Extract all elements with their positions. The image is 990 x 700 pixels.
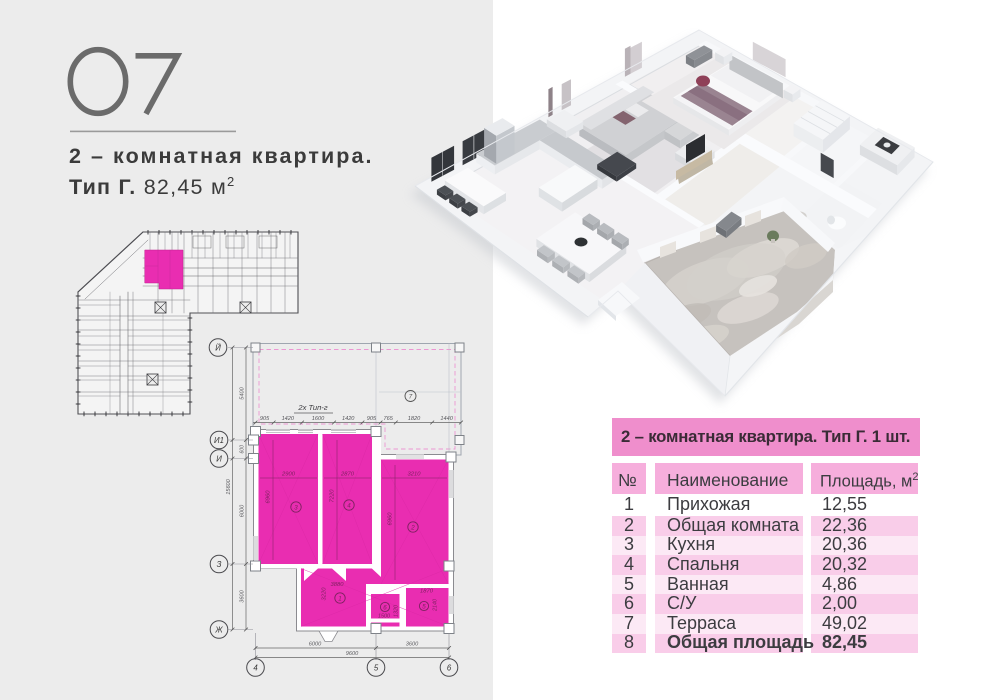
svg-text:3880: 3880 (331, 582, 345, 588)
svg-text:2870: 2870 (340, 472, 355, 478)
svg-text:1: 1 (338, 595, 341, 602)
svg-text:600: 600 (240, 445, 246, 454)
svg-text:5400: 5400 (240, 386, 246, 399)
svg-text:1420: 1420 (282, 416, 295, 422)
svg-text:6000: 6000 (309, 642, 322, 648)
svg-text:5: 5 (374, 663, 379, 672)
svg-text:2x Тип-г: 2x Тип-г (297, 403, 327, 412)
svg-text:9600: 9600 (346, 651, 359, 657)
svg-text:3: 3 (294, 504, 298, 511)
svg-text:1820: 1820 (408, 416, 421, 422)
svg-text:Й: Й (215, 343, 221, 352)
svg-text:1440: 1440 (440, 416, 453, 422)
svg-text:2140: 2140 (433, 599, 439, 612)
svg-text:905: 905 (367, 416, 377, 422)
svg-text:1870: 1870 (420, 589, 434, 595)
svg-text:1600: 1600 (312, 416, 325, 422)
svg-text:6960: 6960 (388, 512, 394, 526)
svg-text:1500: 1500 (378, 614, 390, 620)
svg-text:15600: 15600 (226, 478, 232, 494)
svg-text:3600: 3600 (406, 642, 419, 648)
svg-text:3220: 3220 (322, 587, 328, 601)
svg-text:905: 905 (260, 416, 270, 422)
svg-text:6960: 6960 (266, 490, 272, 504)
svg-text:4: 4 (347, 502, 351, 509)
svg-text:2: 2 (410, 524, 415, 531)
svg-text:5: 5 (422, 603, 426, 610)
svg-text:3600: 3600 (240, 589, 246, 602)
svg-text:3210: 3210 (408, 472, 422, 478)
svg-text:2900: 2900 (281, 472, 296, 478)
svg-text:И: И (216, 454, 222, 463)
svg-text:6: 6 (447, 663, 452, 672)
svg-text:7220: 7220 (330, 489, 336, 503)
svg-text:4: 4 (253, 663, 258, 672)
svg-text:И1: И1 (214, 436, 224, 445)
svg-text:6000: 6000 (240, 504, 246, 517)
svg-text:6: 6 (383, 604, 387, 611)
svg-text:Ж: Ж (214, 625, 223, 634)
svg-text:7: 7 (409, 393, 413, 400)
svg-text:З: З (217, 560, 222, 569)
svg-text:765: 765 (383, 416, 393, 422)
svg-text:1320: 1320 (394, 605, 400, 617)
svg-text:1420: 1420 (342, 416, 355, 422)
